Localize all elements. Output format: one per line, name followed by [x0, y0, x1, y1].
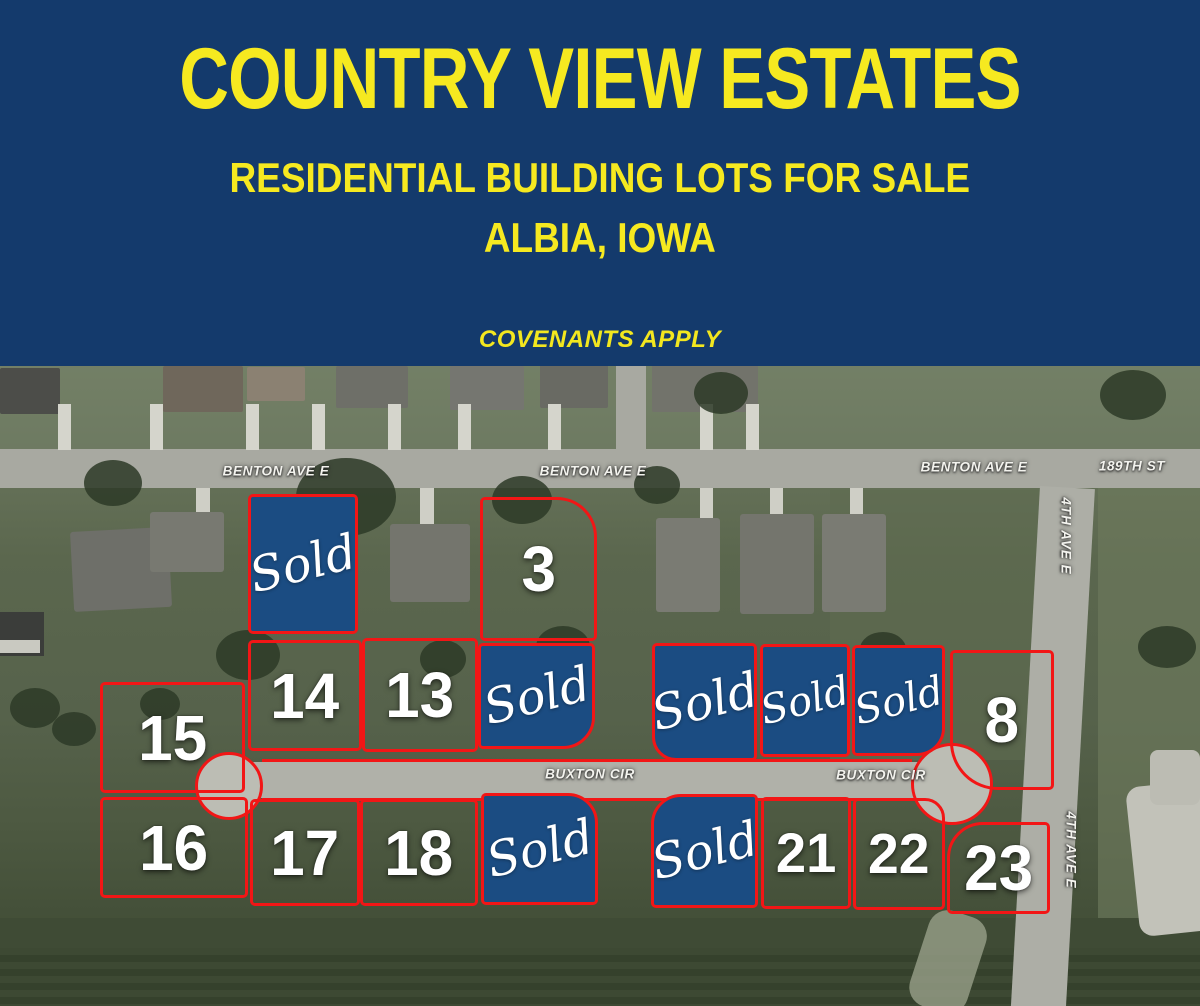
tree-canopy — [52, 712, 96, 746]
lot-15: 15 — [100, 682, 245, 793]
lot-sold-7: Sold — [651, 794, 758, 908]
gravel-pad — [1150, 750, 1200, 805]
subtitle-lots-for-sale: RESIDENTIAL BUILDING LOTS FOR SALE — [0, 154, 1200, 202]
lot-number: 17 — [270, 821, 339, 885]
lot-16: 16 — [100, 797, 248, 898]
house-roof — [822, 514, 886, 612]
lot-number: 16 — [139, 816, 208, 880]
street-label: BUXTON CIR — [836, 768, 926, 783]
street-label: 4TH AVE E — [1064, 811, 1079, 888]
lot-number: 3 — [521, 537, 556, 601]
barn-apron — [0, 640, 40, 653]
tree-canopy — [694, 372, 748, 414]
street-label: BENTON AVE E — [223, 464, 330, 479]
house-roof — [247, 367, 305, 401]
street-label: 189TH ST — [1099, 459, 1165, 474]
lot-13: 13 — [362, 638, 478, 752]
house-roof — [163, 366, 243, 412]
house-roof — [150, 512, 224, 572]
sold-script-label: Sold — [849, 667, 947, 733]
driveway — [150, 404, 163, 450]
road-edge-line — [262, 759, 912, 762]
satellite-map: BENTON AVE EBENTON AVE EBENTON AVE E189T… — [0, 366, 1200, 1006]
lot-18: 18 — [360, 799, 478, 906]
lot-number: 15 — [138, 706, 207, 770]
driveway — [770, 488, 783, 514]
sold-script-label: Sold — [244, 524, 362, 604]
street-label: BENTON AVE E — [540, 464, 647, 479]
lot-sold-6: Sold — [852, 645, 945, 756]
page-title: COUNTRY VIEW ESTATES — [0, 36, 1200, 122]
lot-22: 22 — [853, 798, 945, 910]
lot-14: 14 — [248, 640, 362, 751]
sold-script-label: Sold — [645, 662, 763, 742]
house-roof — [656, 518, 720, 612]
header-banner: COUNTRY VIEW ESTATES RESIDENTIAL BUILDIN… — [0, 0, 1200, 366]
sold-script-label: Sold — [645, 811, 763, 891]
lot-sold-5: Sold — [760, 644, 850, 757]
lot-number: 23 — [964, 836, 1033, 900]
subtitle-city: ALBIA, IOWA — [0, 214, 1200, 262]
house-roof — [0, 368, 60, 414]
lot-number: 21 — [776, 825, 836, 881]
lot-number: 22 — [868, 826, 930, 883]
lot-sold-1: Sold — [248, 494, 358, 634]
lot-sold-2: Sold — [478, 643, 595, 749]
driveway — [746, 404, 759, 450]
driveway — [548, 404, 561, 450]
sold-script-label: Sold — [477, 656, 595, 736]
lot-number: 18 — [384, 821, 453, 885]
driveway — [246, 404, 259, 450]
lot-17: 17 — [250, 799, 360, 906]
driveway — [388, 404, 401, 450]
street-label: BUXTON CIR — [545, 767, 635, 782]
driveway — [58, 404, 71, 450]
street-label: BENTON AVE E — [921, 460, 1028, 475]
lot-number: 14 — [270, 664, 339, 728]
tree-canopy — [1100, 370, 1166, 420]
driveway — [312, 404, 325, 450]
driveway — [420, 488, 434, 524]
street-label: 4TH AVE E — [1059, 497, 1074, 574]
lot-number: 8 — [985, 688, 1020, 752]
driveway — [458, 404, 471, 450]
tree-canopy — [84, 460, 142, 506]
sold-script-label: Sold — [480, 809, 598, 889]
house-roof — [540, 366, 608, 408]
lot-sale-flyer: COUNTRY VIEW ESTATES RESIDENTIAL BUILDIN… — [0, 0, 1200, 1006]
driveway — [850, 488, 863, 514]
lot-3: 3 — [480, 497, 597, 641]
covenants-note: COVENANTS APPLY — [0, 326, 1200, 354]
lot-8: 8 — [950, 650, 1054, 790]
driveway — [700, 488, 713, 518]
lot-sold-4: Sold — [652, 643, 757, 761]
sold-script-label: Sold — [756, 667, 854, 733]
lot-number: 13 — [385, 663, 454, 727]
road-north-stub — [616, 366, 646, 455]
lot-23: 23 — [947, 822, 1050, 914]
house-roof — [390, 524, 470, 602]
tree-canopy — [1138, 626, 1196, 668]
house-roof — [336, 366, 408, 408]
lot-21: 21 — [761, 797, 851, 909]
lot-sold-3: Sold — [481, 793, 598, 905]
house-roof — [740, 514, 814, 614]
